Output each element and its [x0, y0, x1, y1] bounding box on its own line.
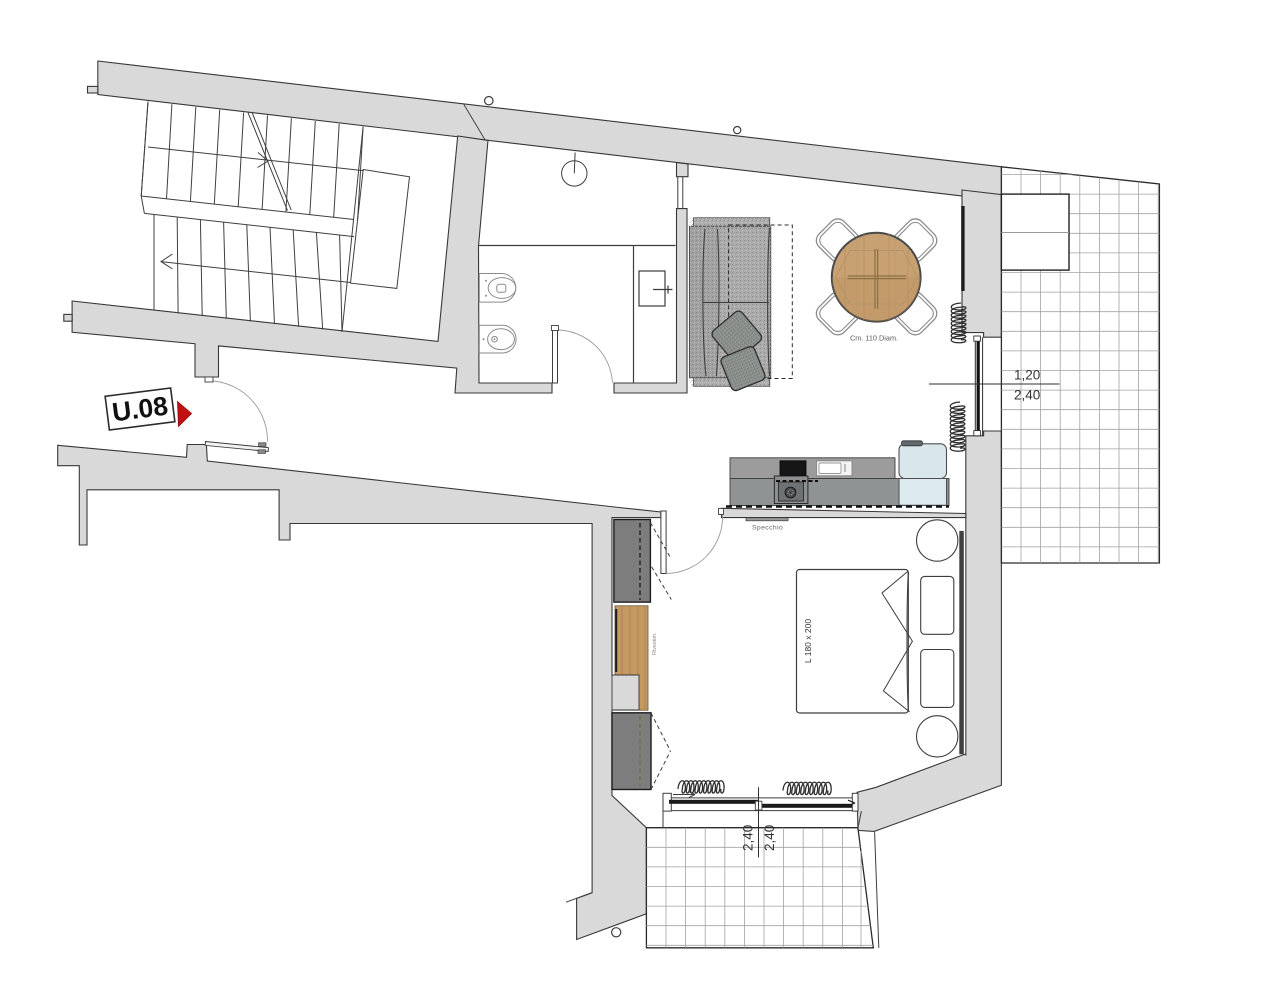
svg-text:Specchio: Specchio [752, 525, 783, 532]
svg-text:Rivestim.: Rivestim. [652, 632, 658, 655]
svg-text:Cm. 110 Diam.: Cm. 110 Diam. [850, 334, 898, 343]
svg-text:2,40: 2,40 [741, 825, 756, 851]
svg-text:L 180 x 200: L 180 x 200 [803, 619, 813, 663]
svg-text:2,40: 2,40 [1014, 388, 1040, 403]
svg-text:1,20: 1,20 [1014, 368, 1040, 383]
svg-text:2,40: 2,40 [762, 825, 777, 851]
